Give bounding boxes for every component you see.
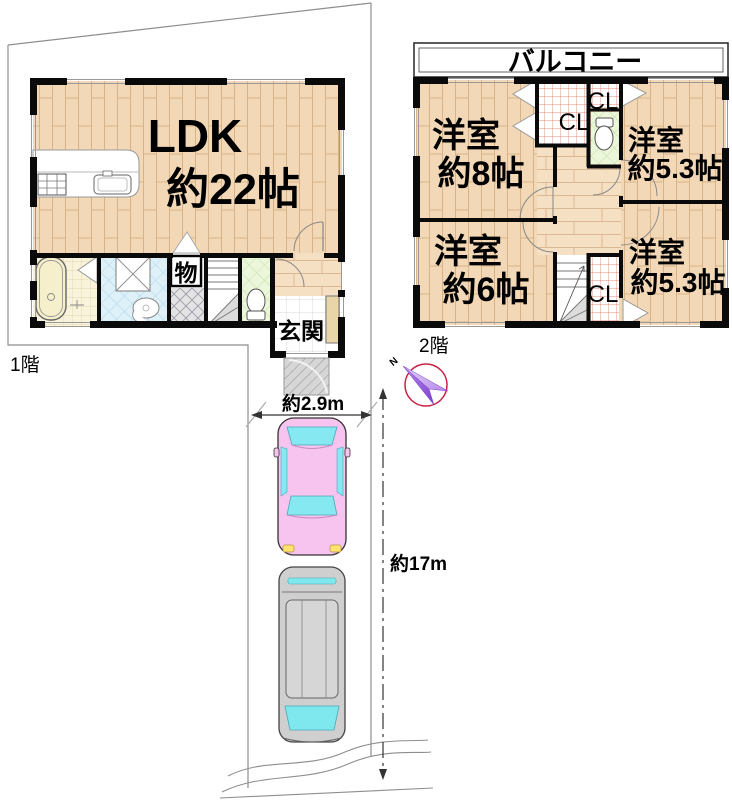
boundary-line-top	[8, 3, 371, 45]
room-6jo-name: 洋室	[434, 232, 502, 271]
closet-left-label: CL	[559, 109, 590, 136]
floorplan-drawing: 物	[0, 0, 732, 800]
sedan-taillight-right	[330, 545, 341, 552]
depth-dimension-label: 約17m	[390, 552, 447, 575]
width-dimension-label: 約2.9m	[282, 392, 344, 415]
sedan-rear-window	[287, 496, 337, 515]
sedan-mirror-right	[345, 448, 350, 457]
floor1-plan: 物	[10, 78, 345, 395]
toilet-1f-fixture	[247, 289, 265, 320]
room-8jo-size: 約8帖	[438, 155, 525, 193]
floorplan-page: 物	[0, 0, 732, 800]
depth-dimension: 約17m	[379, 388, 447, 780]
ldk-size-label: 約22帖	[166, 166, 300, 214]
room-6jo-size: 約6帖	[443, 271, 530, 309]
ldk-label: LDK	[148, 110, 243, 162]
sedan-mirror-left	[274, 448, 279, 457]
van-rear-window	[288, 578, 336, 584]
entrance-porch	[284, 358, 329, 395]
closet-bottom-label: CL	[588, 281, 619, 308]
floor2-label: 2階	[419, 335, 449, 357]
sedan-windshield	[287, 427, 337, 445]
shoe-cabinet	[326, 296, 339, 343]
sedan-taillight-left	[283, 545, 294, 552]
toilet-2f-fixture	[595, 118, 613, 150]
compass: N	[388, 356, 448, 406]
entrance-label: 玄関	[278, 318, 324, 344]
balcony: バルコニー	[414, 43, 728, 77]
washing-machine-icon	[116, 257, 150, 291]
storage-label: 物	[175, 260, 198, 286]
car-sedan	[274, 418, 350, 555]
room-8jo-name: 洋室	[432, 116, 500, 155]
stove-icon	[38, 174, 66, 195]
storage-closet: 物	[171, 256, 201, 286]
room-53jo-upper-name: 洋室	[628, 124, 684, 156]
sedan-side-glass-right	[337, 447, 343, 496]
closet-top-label: CL	[588, 88, 619, 115]
floor1-label: 1階	[10, 354, 40, 376]
van-windshield	[285, 706, 339, 730]
road-edge	[220, 740, 433, 798]
sedan-side-glass-left	[281, 447, 287, 496]
car-van	[279, 567, 345, 742]
van-roof-panel	[286, 600, 338, 698]
balcony-label: バルコニー	[508, 47, 642, 77]
room-53jo-lower-size: 約5.3帖	[631, 266, 726, 298]
room-53jo-lower-name: 洋室	[629, 236, 685, 268]
room-53jo-upper-size: 約5.3帖	[628, 152, 723, 184]
floor2-plan: バルコニー	[413, 43, 729, 357]
compass-north-label: N	[388, 356, 401, 369]
kitchen-counter	[33, 150, 139, 197]
road-line	[220, 788, 433, 798]
